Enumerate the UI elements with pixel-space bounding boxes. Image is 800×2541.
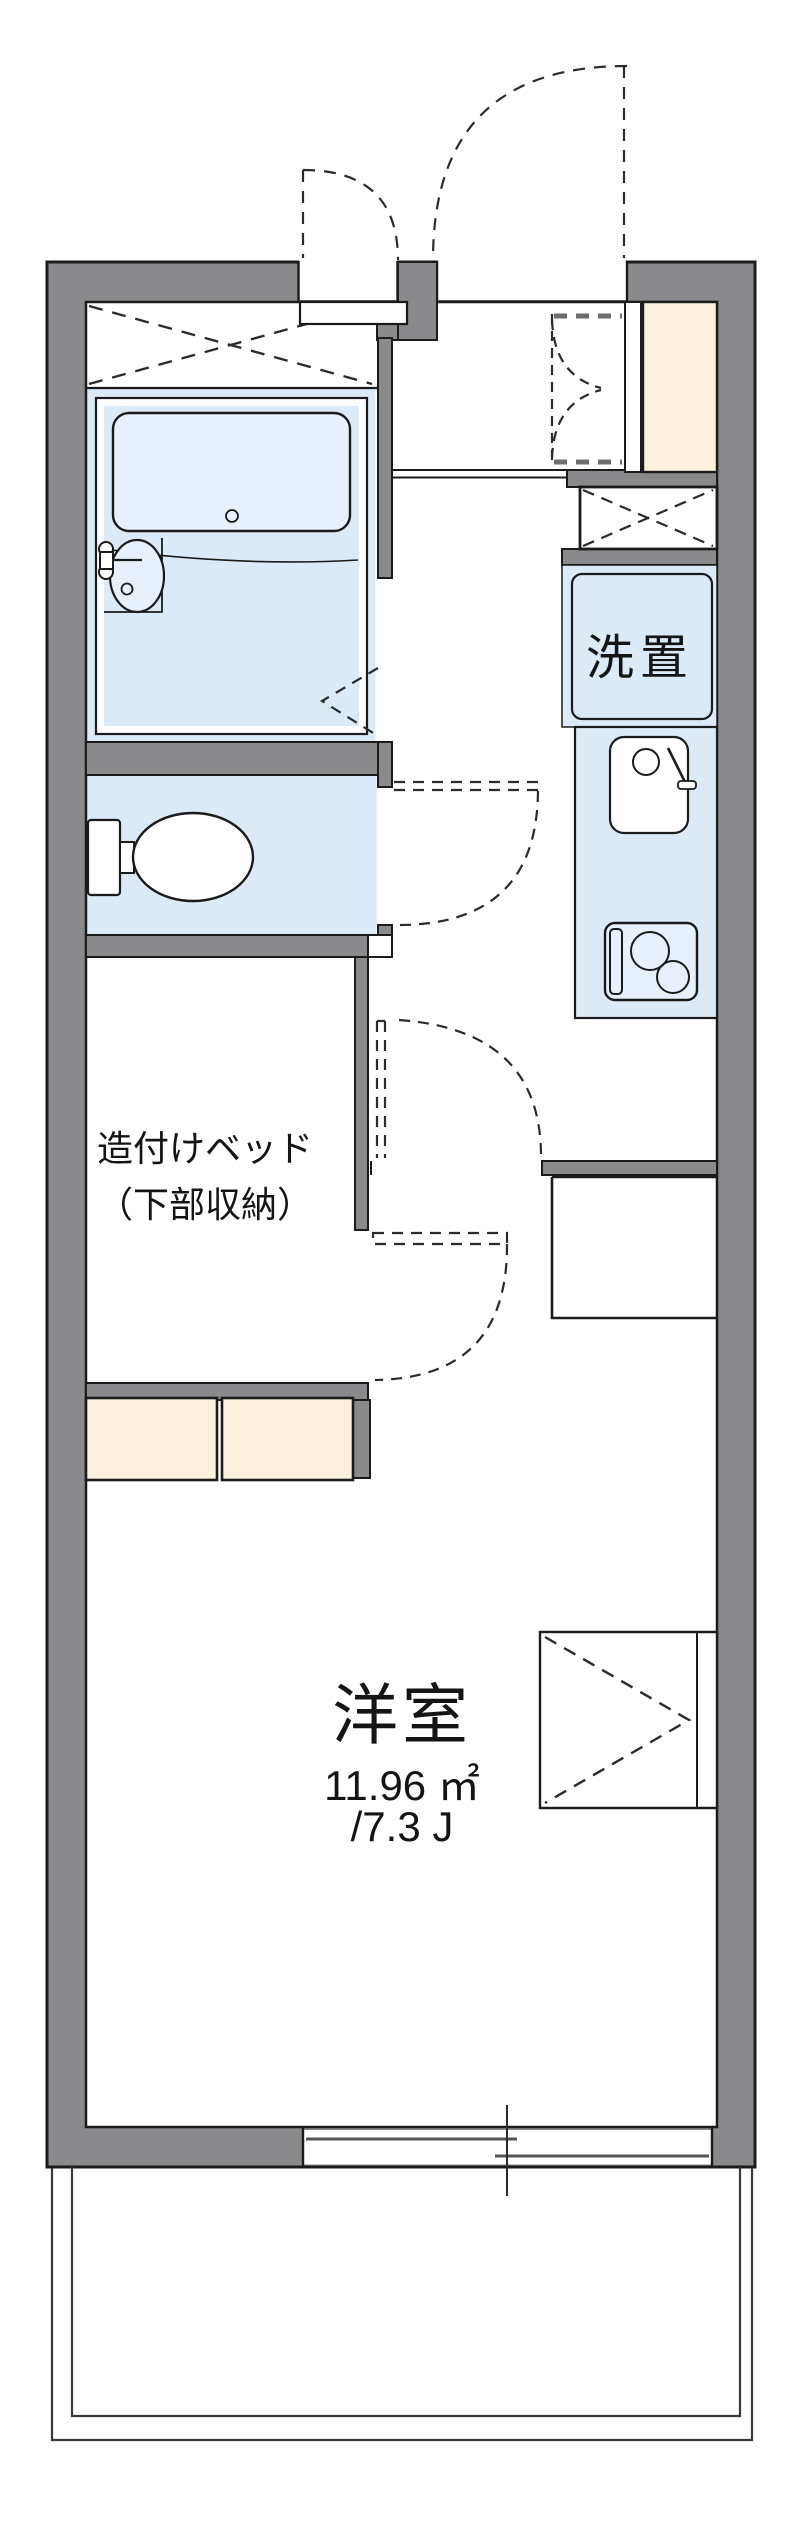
- refrigerator-space: [552, 1177, 717, 1318]
- bedroom-door-swing-icon: [373, 1233, 507, 1380]
- kitchen-counter: [575, 727, 717, 1018]
- western-room-area-tatami: /7.3 J: [252, 1803, 552, 1851]
- wall-notch: [368, 935, 392, 957]
- under-bed-storage-chests: [86, 1398, 353, 1480]
- toilet-door-swing-icon: [394, 782, 538, 925]
- folding-door-swing-icon: [552, 314, 622, 464]
- toilet-icon: [88, 813, 253, 901]
- bathtub-icon: [113, 413, 350, 531]
- built-in-bed-label: 造付けベッド: [55, 1120, 355, 1172]
- floor-plan-drawing: [0, 0, 800, 2541]
- washer-space-label: 洗置: [562, 618, 718, 688]
- bathroom-unit: [96, 398, 378, 736]
- under-bed-storage-label: （下部収納）: [55, 1176, 355, 1228]
- entrance-step: [300, 302, 407, 324]
- balcony-rail: [52, 2168, 752, 2440]
- entrance-openings: [299, 258, 628, 302]
- western-room-label: 洋室: [252, 1662, 552, 1758]
- gas-stove-icon: [605, 923, 697, 1000]
- floor-plan: 洗置 造付けベッド （下部収納） 洋室 11.96 ㎡ /7.3 J: [0, 0, 800, 2541]
- entrance-door-swing-icon: [303, 66, 627, 260]
- kitchen-storage-box: [580, 487, 717, 549]
- kitchen-sink-icon: [610, 737, 696, 833]
- closet: [540, 1632, 717, 1808]
- kitchen-door-swing-icon: [377, 1020, 541, 1158]
- shoe-cabinet: [625, 302, 717, 472]
- entrance-threshold: [392, 470, 567, 478]
